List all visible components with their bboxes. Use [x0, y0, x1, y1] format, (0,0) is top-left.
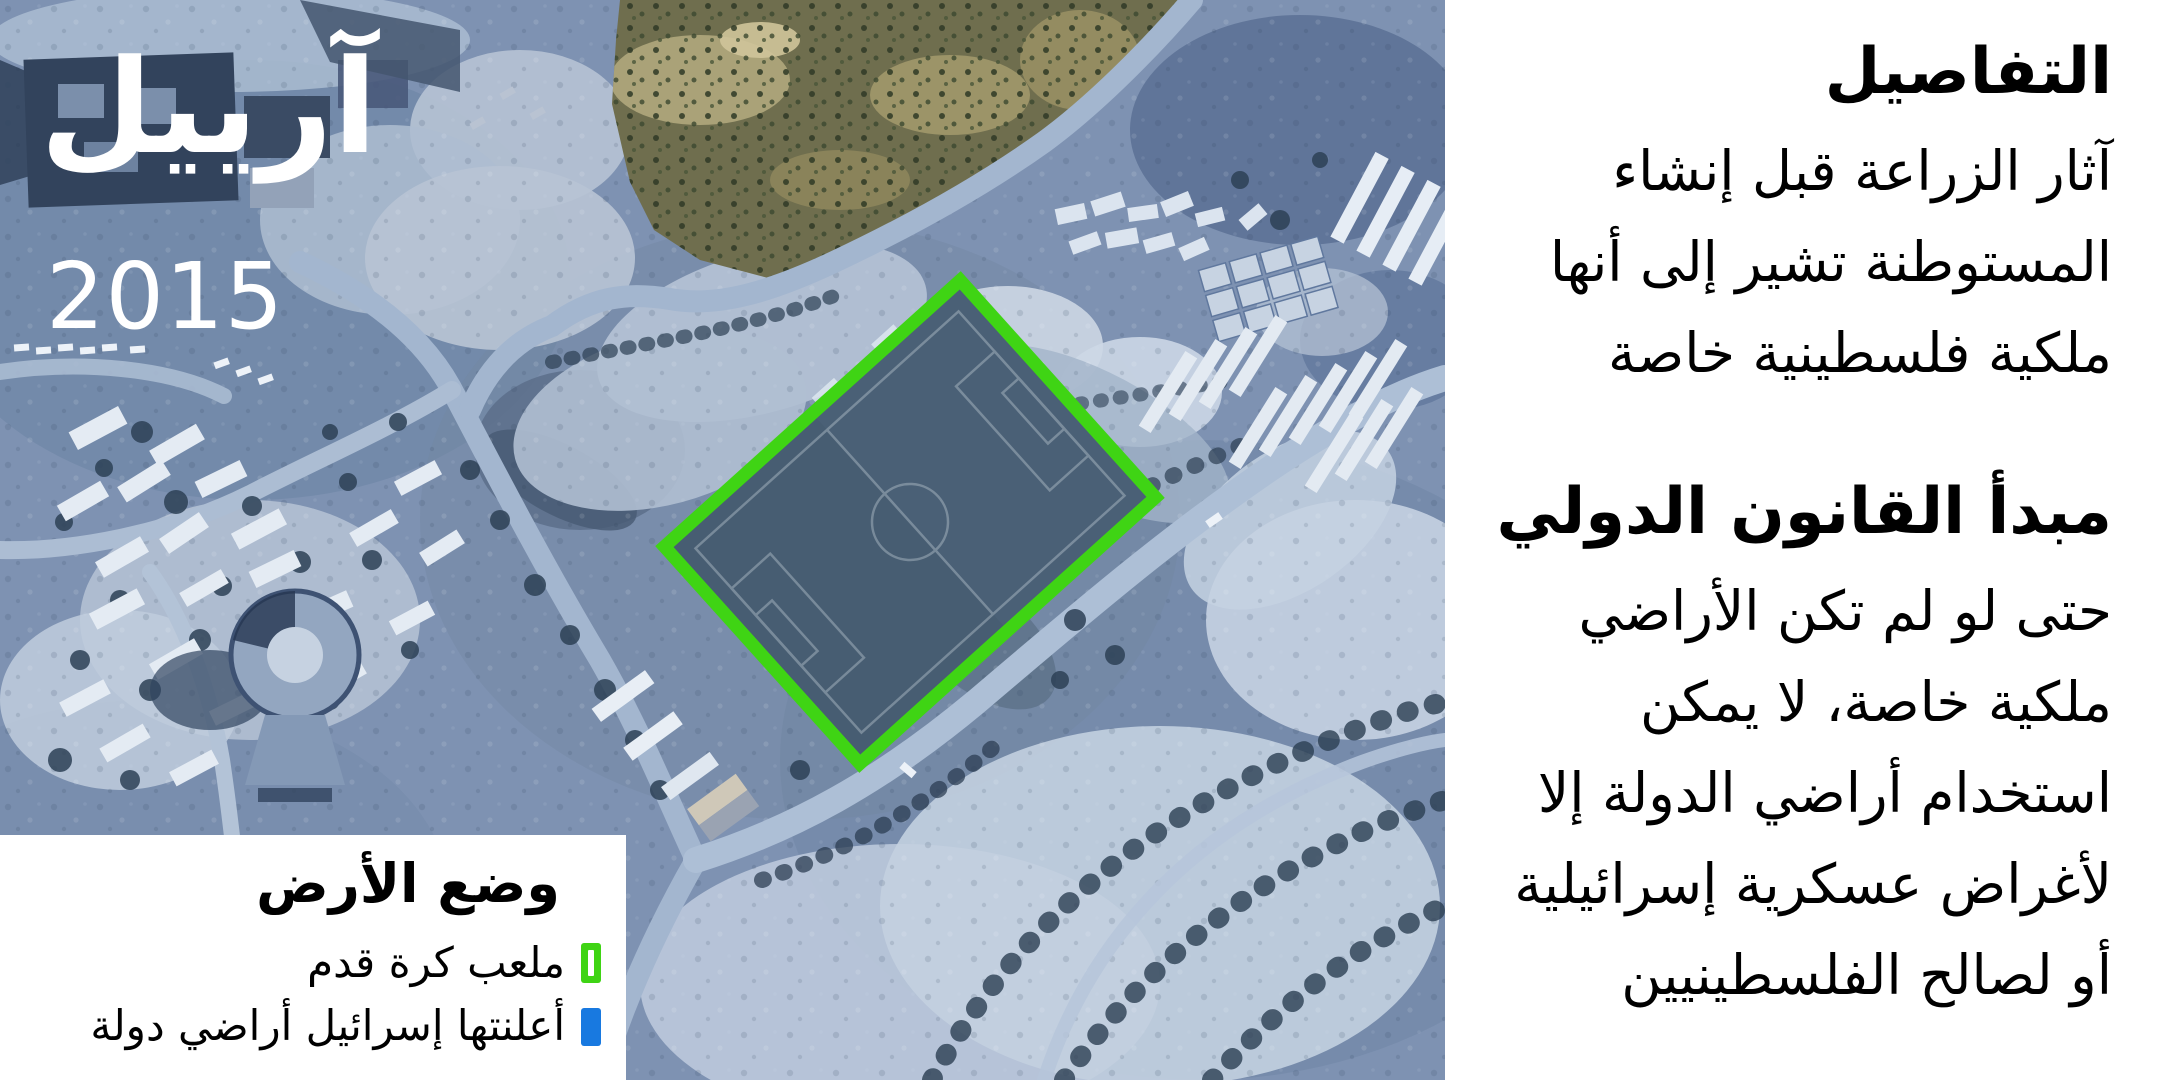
legend-item-label: ملعب كرة قدم [307, 939, 565, 987]
legend-item-label: أعلنتها إسرائيل أراضي دولة [90, 1002, 565, 1050]
legend-item: أعلنتها إسرائيل أراضي دولة [10, 1002, 601, 1050]
details-line: المستوطنة تشير إلى أنها [1550, 217, 2112, 308]
details-panel: التفاصيل آثار الزراعة قبل إنشاء المستوطن… [1445, 0, 2160, 1080]
details-line: ملكية خاصة، لا يمكن [1496, 657, 2112, 748]
details-line: حتى لو لم تكن الأراضي [1496, 566, 2112, 657]
details-section: التفاصيل آثار الزراعة قبل إنشاء المستوطن… [1550, 30, 2112, 399]
field-swatch-icon [581, 943, 601, 983]
infographic-canvas: آرييل 2015 وضع الأرض ملعب كرة قدم أعلنته… [0, 0, 2160, 1080]
legend-panel: وضع الأرض ملعب كرة قدم أعلنتها إسرائيل أ… [0, 835, 626, 1080]
details-text: آثار الزراعة قبل إنشاء المستوطنة تشير إل… [1550, 126, 2112, 399]
details-line: استخدام أراضي الدولة إلا [1496, 748, 2112, 839]
map-period-year: 2015 [46, 246, 284, 347]
map-period-title: آرييل [40, 26, 370, 189]
law-section: مبدأ القانون الدولي حتى لو لم تكن الأراض… [1496, 470, 2112, 1021]
legend-item: ملعب كرة قدم [10, 939, 601, 987]
field-swatch-inner [588, 950, 594, 976]
law-heading: مبدأ القانون الدولي [1496, 470, 2112, 556]
law-text: حتى لو لم تكن الأراضي ملكية خاصة، لا يمك… [1496, 566, 2112, 1021]
details-line: لأغراض عسكرية إسرائيلية [1496, 839, 2112, 930]
details-heading: التفاصيل [1550, 30, 2112, 116]
details-line: أو لصالح الفلسطينيين [1496, 930, 2112, 1021]
legend-title: وضع الأرض [10, 849, 560, 919]
state-land-swatch-icon [581, 1008, 601, 1046]
details-line: آثار الزراعة قبل إنشاء [1550, 126, 2112, 217]
details-line: ملكية فلسطينية خاصة [1550, 308, 2112, 399]
